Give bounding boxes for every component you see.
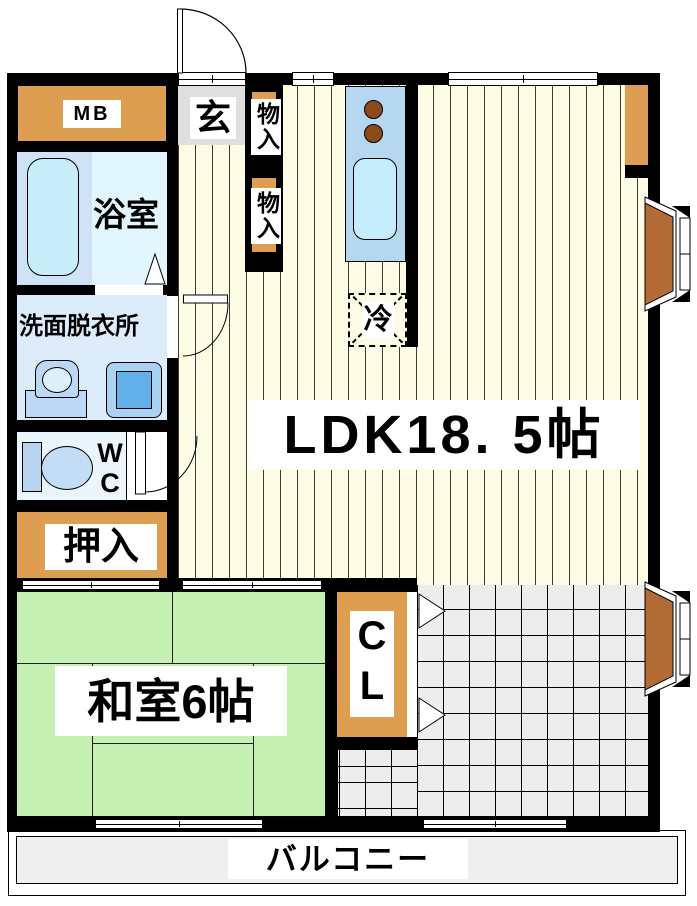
sliding-door-oshiire <box>22 580 160 590</box>
label-storage-2: 物入 <box>251 188 281 244</box>
tatami-line <box>17 663 325 664</box>
oshiire-text: 押入 <box>63 528 139 566</box>
label-genkan: 玄 <box>190 97 236 139</box>
bathroom-text: 浴室 <box>93 196 159 233</box>
label-storage-1: 物入 <box>251 99 281 155</box>
window-bottom-washitsu <box>95 819 263 829</box>
label-closet-cl: CL <box>350 611 394 717</box>
wall-below-mb <box>7 142 178 152</box>
toilet-tank <box>22 442 42 492</box>
washroom-text: 洗面脱衣所 <box>19 313 139 340</box>
entrance-door <box>177 8 247 74</box>
label-ldk: LDK18. 5帖 <box>248 400 640 470</box>
floor-plan: MB 玄 物入 物入 浴室 洗面脱衣所 WC 押入 LDK18. 5帖 冷 和室… <box>0 0 697 906</box>
wall-right <box>648 73 660 832</box>
niche-wall-stub <box>625 165 660 178</box>
label-washroom: 洗面脱衣所 <box>19 306 139 341</box>
bay-window-lower <box>644 581 692 697</box>
wall-corridor-upper <box>167 73 178 296</box>
label-oshiire: 押入 <box>45 524 157 570</box>
sliding-door-washitsu-ldk <box>182 580 322 590</box>
closet-text: CL <box>352 614 392 714</box>
label-bathroom: 浴室 <box>93 188 159 236</box>
bath-door-opening <box>95 285 163 295</box>
balcony-text: バルコニー <box>266 844 430 875</box>
wc-text: WC <box>95 438 125 498</box>
toilet-bowl <box>41 446 93 490</box>
bathtub <box>27 158 79 276</box>
bay-window-upper <box>644 196 692 312</box>
closet-wall-top <box>330 578 417 592</box>
storage-text: 物入 <box>255 191 278 241</box>
label-refrigerator: 冷 <box>362 301 394 339</box>
wall-kitchen <box>406 73 418 347</box>
tatami-line <box>92 743 253 744</box>
tatami-line <box>172 592 173 663</box>
washing-machine-drum <box>116 371 152 409</box>
wall-below-wc <box>7 500 178 512</box>
window-bottom-ldk <box>423 819 567 829</box>
stove-burner <box>364 124 383 143</box>
closet-door-triangle <box>417 696 447 734</box>
storage-text: 物入 <box>255 102 278 152</box>
bath-door-triangle <box>143 252 167 286</box>
stove-burner <box>364 100 383 119</box>
tile-floor-under-closet <box>337 750 417 818</box>
entrance-threshold <box>178 72 246 86</box>
ldk-text: LDK18. 5帖 <box>283 408 604 462</box>
closet-door-triangle <box>417 592 447 630</box>
closet-wall-bottom <box>330 737 417 750</box>
tile-floor-main <box>417 585 648 818</box>
closet-wall-left <box>330 592 337 752</box>
washroom-door <box>183 294 231 358</box>
refrigerator-text: 冷 <box>363 306 392 335</box>
pipe-space-niche <box>625 85 648 165</box>
label-mb: MB <box>63 100 121 128</box>
genkan-text: 玄 <box>195 100 231 136</box>
window-top-small <box>292 72 334 86</box>
label-washitsu: 和室6帖 <box>55 666 287 736</box>
label-wc: WC <box>96 438 123 498</box>
kitchen-sink <box>353 158 397 240</box>
vanity-bowl <box>42 367 72 393</box>
washitsu-text: 和室6帖 <box>87 678 254 725</box>
wall-left <box>7 73 17 832</box>
mb-text: MB <box>73 104 110 124</box>
label-balcony: バルコニー <box>228 839 468 879</box>
window-top-large <box>448 72 598 86</box>
wc-door <box>135 430 199 496</box>
